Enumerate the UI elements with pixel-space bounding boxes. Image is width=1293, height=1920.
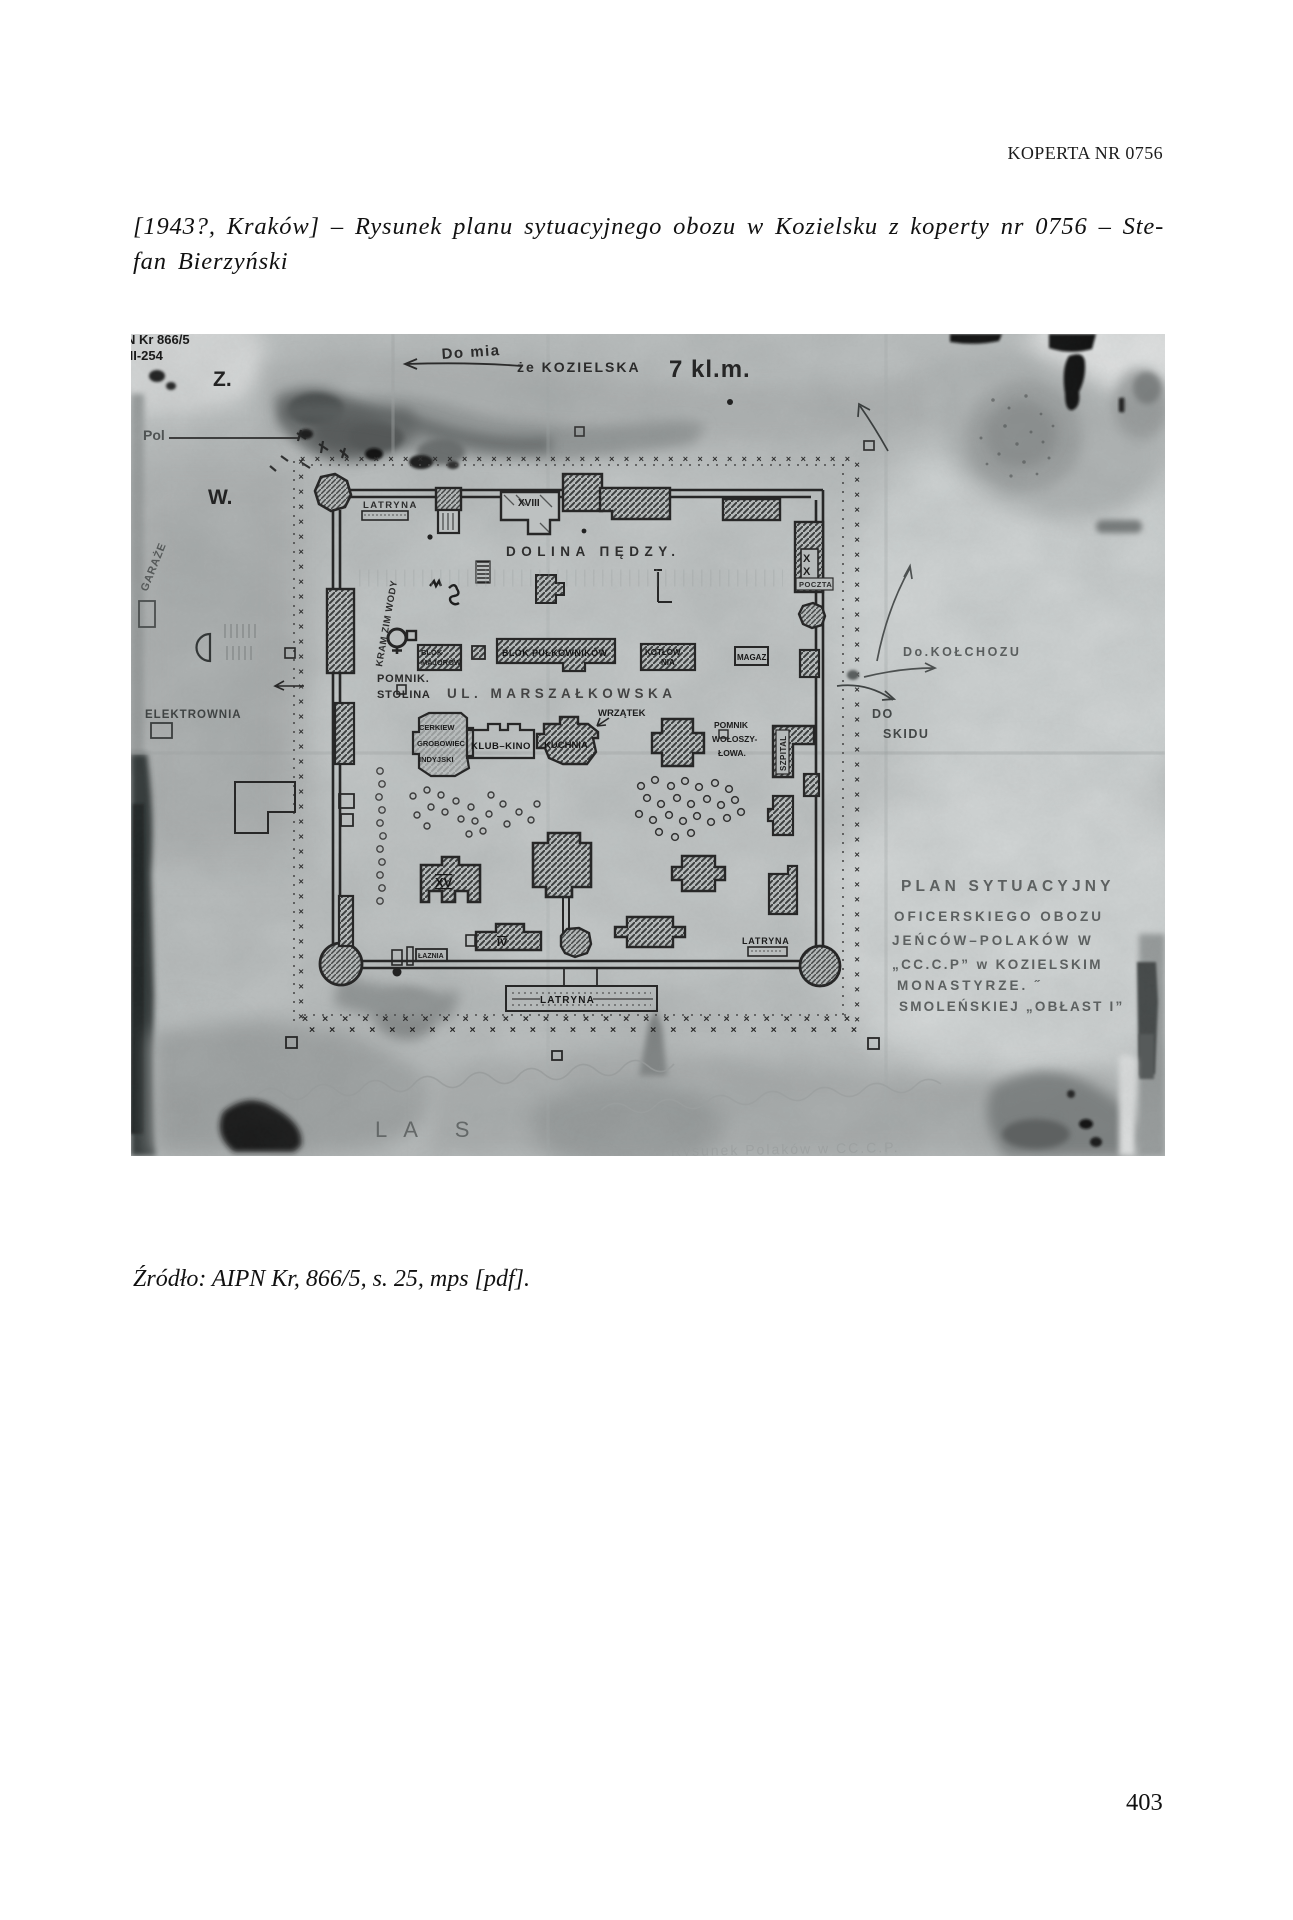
svg-text:JEŃCÓW–POLAKÓW W: JEŃCÓW–POLAKÓW W xyxy=(892,933,1094,948)
svg-text:„CC.C.P” w KOZIELSKIM: „CC.C.P” w KOZIELSKIM xyxy=(892,957,1103,972)
svg-text:IV: IV xyxy=(497,937,508,949)
svg-text:Pol: Pol xyxy=(143,427,165,443)
svg-text:MAGAZ.: MAGAZ. xyxy=(737,653,769,662)
svg-text:ELEKTROWNIA: ELEKTROWNIA xyxy=(145,709,242,721)
svg-text:SZPITAL: SZPITAL xyxy=(779,735,788,771)
svg-text:LATRYNA: LATRYNA xyxy=(540,995,595,1006)
svg-text:W.: W. xyxy=(208,486,233,509)
svg-text:STOLINA: STOLINA xyxy=(377,689,431,701)
svg-text:KLUB–KINO: KLUB–KINO xyxy=(471,741,531,752)
svg-text:XVIII: XVIII xyxy=(518,498,540,509)
svg-text:GROBOWIEC: GROBOWIEC xyxy=(417,739,465,748)
svg-text:ŁOWA.: ŁOWA. xyxy=(718,748,746,758)
svg-text:BLOK PUŁKOWNIKÓW: BLOK PUŁKOWNIKÓW xyxy=(502,647,607,658)
svg-text:LA S: LA S xyxy=(375,1117,485,1142)
svg-text:XV: XV xyxy=(435,875,453,890)
svg-text:POCZTA: POCZTA xyxy=(799,580,832,589)
svg-text:DO: DO xyxy=(872,707,894,721)
svg-text:MONASTYRZE. ˝: MONASTYRZE. ˝ xyxy=(897,978,1043,993)
svg-text:III-254: III-254 xyxy=(131,348,164,363)
svg-text:POMNIK: POMNIK xyxy=(714,720,749,730)
svg-text:7 kl.m.: 7 kl.m. xyxy=(669,356,751,383)
svg-text:Do.KOŁCHOZU: Do.KOŁCHOZU xyxy=(903,645,1021,659)
svg-text:LATRYNA: LATRYNA xyxy=(742,936,790,946)
svg-text:LATRYNA: LATRYNA xyxy=(363,500,418,511)
svg-text:Rysunek Polaków w CC.C.P.: Rysunek Polaków w CC.C.P. xyxy=(671,1139,900,1156)
svg-text:WRZĄTEK: WRZĄTEK xyxy=(598,708,646,719)
svg-text:POMNIK.: POMNIK. xyxy=(377,673,430,685)
svg-text:KUCHNIA: KUCHNIA xyxy=(544,740,588,751)
svg-text:INDYJSKI: INDYJSKI xyxy=(419,755,454,764)
svg-text:że KOZIELSKA: że KOZIELSKA xyxy=(517,359,641,375)
svg-text:N Kr 866/5: N Kr 866/5 xyxy=(131,334,190,347)
svg-text:KOTŁOW: KOTŁOW xyxy=(645,648,681,657)
svg-text:SKIDU: SKIDU xyxy=(883,727,929,741)
svg-text:NIA: NIA xyxy=(661,658,675,667)
svg-text:CERKIEW: CERKIEW xyxy=(419,723,455,732)
svg-text:X: X xyxy=(803,553,811,565)
svg-text:X: X xyxy=(803,566,811,578)
svg-text:ŁAZNIA: ŁAZNIA xyxy=(418,953,444,960)
svg-text:BLOK: BLOK xyxy=(421,648,443,657)
svg-text:UL. MARSZAŁKOWSKA: UL. MARSZAŁKOWSKA xyxy=(447,686,676,701)
svg-text:Z.: Z. xyxy=(213,368,232,391)
svg-text:DOLINA ΠĘDZY.: DOLINA ΠĘDZY. xyxy=(506,544,681,559)
svg-text:OFICERSKIEGO OBOZU: OFICERSKIEGO OBOZU xyxy=(894,909,1104,924)
svg-text:SMOLEŃSKIEJ „OBŁAST I”: SMOLEŃSKIEJ „OBŁAST I” xyxy=(899,999,1124,1014)
svg-text:MAJORÓW: MAJORÓW xyxy=(421,658,462,667)
svg-text:PLAN SYTUACYJNY: PLAN SYTUACYJNY xyxy=(901,878,1115,895)
